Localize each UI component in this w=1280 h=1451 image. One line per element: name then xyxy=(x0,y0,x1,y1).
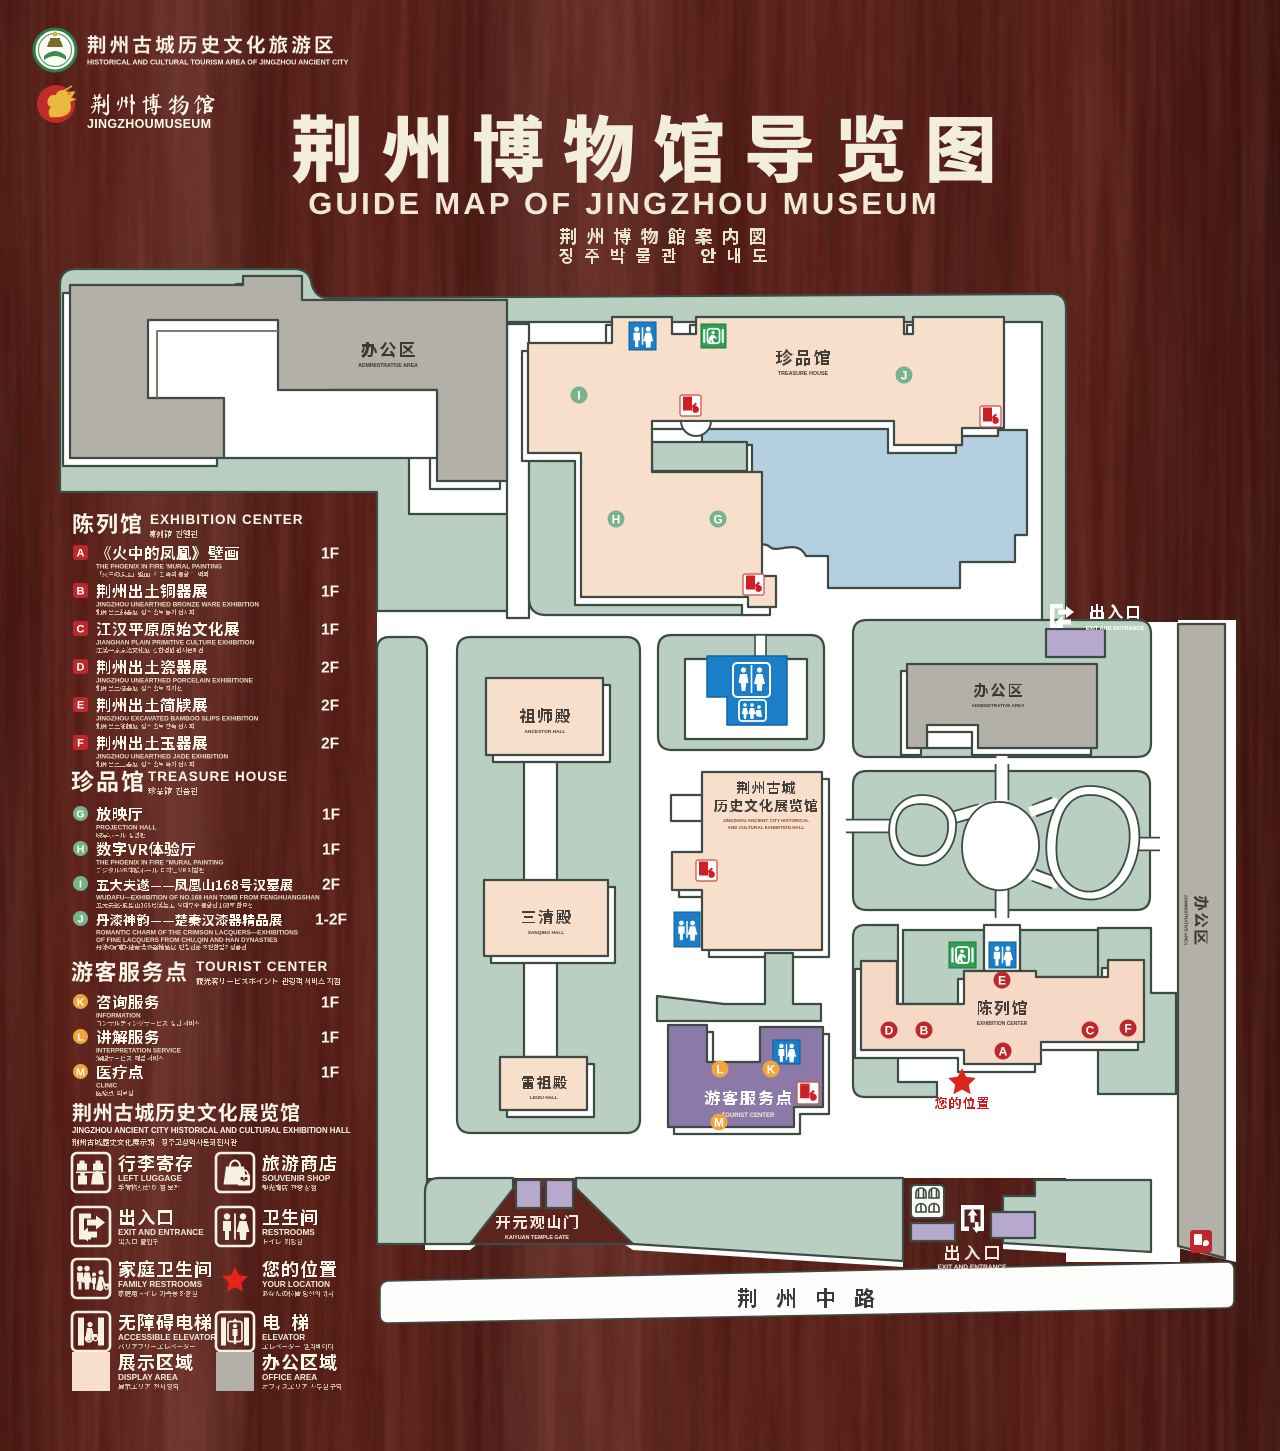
svg-text:WUDAFU—EXHIBITION OF NO.168 HA: WUDAFU—EXHIBITION OF NO.168 HAN TOMB FRO… xyxy=(96,895,320,902)
svg-text:THE PHOENIX IN FIRE 'MURAL PAI: THE PHOENIX IN FIRE 'MURAL PAINTING xyxy=(96,564,222,571)
svg-text:F: F xyxy=(1124,1021,1131,1035)
svg-text:JIANGHAN PLAIN PRIMITIVE CULTU: JIANGHAN PLAIN PRIMITIVE CULTURE EXHIBIT… xyxy=(96,640,255,647)
svg-text:PROJECTION HALL: PROJECTION HALL xyxy=(96,825,156,832)
svg-text:H: H xyxy=(77,844,85,856)
svg-text:1F: 1F xyxy=(322,807,340,824)
svg-text:1F: 1F xyxy=(321,995,339,1012)
svg-text:2F: 2F xyxy=(321,660,339,677)
svg-text:ADMINISTRATIVE AREA: ADMINISTRATIVE AREA xyxy=(1184,895,1189,946)
svg-text:ROMANTIC CHARM OF THE CRIMSON: ROMANTIC CHARM OF THE CRIMSON LACQUERS—E… xyxy=(96,930,299,937)
svg-text:A: A xyxy=(77,548,85,560)
svg-text:M: M xyxy=(714,1115,724,1129)
svg-text:1F: 1F xyxy=(321,546,339,563)
svg-text:D: D xyxy=(885,1023,894,1037)
svg-text:G: G xyxy=(76,809,84,821)
svg-text:INTERPRETATION SERVICE: INTERPRETATION SERVICE xyxy=(96,1048,182,1055)
svg-text:I: I xyxy=(79,879,82,891)
svg-text:KAIYUAN TEMPLE GATE: KAIYUAN TEMPLE GATE xyxy=(505,1235,569,1241)
svg-text:OF FINE LACQUERS FROM CHU,QIN: OF FINE LACQUERS FROM CHU,QIN AND HAN DY… xyxy=(96,937,278,944)
svg-text:I: I xyxy=(577,388,580,402)
svg-text:EXIT AND ENTRANCE: EXIT AND ENTRANCE xyxy=(938,1264,1008,1271)
svg-text:F: F xyxy=(77,738,84,750)
svg-text:E: E xyxy=(998,973,1006,987)
svg-text:ANCESTOR HALL: ANCESTOR HALL xyxy=(525,729,566,735)
svg-text:HISTORICAL AND CULTURAL TOURIS: HISTORICAL AND CULTURAL TOURISM AREA OF … xyxy=(87,58,349,67)
svg-text:JINGZHOU ANCIENT CITY HISTORIC: JINGZHOU ANCIENT CITY HISTORICAL AND CUL… xyxy=(72,1126,351,1135)
svg-text:EXIT AND ENTRANCE: EXIT AND ENTRANCE xyxy=(1086,626,1145,632)
svg-text:TREASURE HOUSE: TREASURE HOUSE xyxy=(148,769,288,784)
svg-text:G: G xyxy=(713,512,722,526)
svg-text:1-2F: 1-2F xyxy=(315,912,347,929)
svg-text:AND CULTURAL EXHIBITION HALL: AND CULTURAL EXHIBITION HALL xyxy=(728,825,805,830)
svg-text:EXHIBITION CENTER: EXHIBITION CENTER xyxy=(150,512,304,527)
svg-text:2F: 2F xyxy=(321,698,339,715)
svg-text:J: J xyxy=(901,368,908,382)
svg-text:1F: 1F xyxy=(321,1030,339,1047)
svg-text:H: H xyxy=(612,512,621,526)
svg-text:LEFT LUGGAGE: LEFT LUGGAGE xyxy=(118,1174,183,1183)
svg-text:1F: 1F xyxy=(321,622,339,639)
svg-text:K: K xyxy=(77,997,85,1009)
svg-text:JINGZHOU EXCAVATED BAMBOO SLIP: JINGZHOU EXCAVATED BAMBOO SLIPS EXHIBITI… xyxy=(96,716,259,723)
svg-text:A: A xyxy=(999,1044,1008,1058)
svg-text:JINGZHOU ANCIENT CITY HISTORIC: JINGZHOU ANCIENT CITY HISTORICAL xyxy=(723,818,809,823)
svg-text:E: E xyxy=(77,700,84,712)
svg-text:2F: 2F xyxy=(321,736,339,753)
svg-text:C: C xyxy=(77,624,85,636)
svg-text:2F: 2F xyxy=(322,877,340,894)
svg-text:ADMINISTRATIVE AREA: ADMINISTRATIVE AREA xyxy=(358,363,418,369)
svg-text:1F: 1F xyxy=(321,1065,339,1082)
svg-text:INFORMATION: INFORMATION xyxy=(96,1013,141,1020)
svg-text:TOURIST CENTER: TOURIST CENTER xyxy=(722,1113,775,1119)
svg-text:RESTROOMS: RESTROOMS xyxy=(262,1228,315,1237)
svg-text:J: J xyxy=(78,914,84,926)
svg-text:K: K xyxy=(767,1062,776,1076)
svg-text:JINGZHOUMUSEUM: JINGZHOUMUSEUM xyxy=(87,117,211,131)
svg-text:SANQING HALL: SANQING HALL xyxy=(528,930,565,936)
svg-text:C: C xyxy=(1086,1023,1095,1037)
svg-text:GUIDE MAP OF JINGZHOU MUSEUM: GUIDE MAP OF JINGZHOU MUSEUM xyxy=(308,186,940,221)
svg-text:JINGZHOU UNEARTHED JADE EXHIBI: JINGZHOU UNEARTHED JADE EXHIBITION xyxy=(96,754,228,761)
svg-text:TREASURE HOUSE: TREASURE HOUSE xyxy=(778,371,829,377)
svg-text:JINGZHOU UNEARTHED PORCELAIN E: JINGZHOU UNEARTHED PORCELAIN EXHIBITIONE xyxy=(96,678,254,685)
svg-text:M: M xyxy=(76,1067,85,1079)
svg-text:JINGZHOU UNEARTHED BRONZE WARE: JINGZHOU UNEARTHED BRONZE WARE EXHIBITIO… xyxy=(96,602,259,609)
svg-text:L: L xyxy=(716,1062,723,1076)
svg-text:ELEVATOR: ELEVATOR xyxy=(262,1333,305,1342)
svg-text:THE PHOENIX IN FIRE ''MURAL PA: THE PHOENIX IN FIRE ''MURAL PAINTING xyxy=(96,860,223,867)
svg-text:DISPLAY AREA: DISPLAY AREA xyxy=(118,1373,178,1382)
svg-text:EXHIBITION CENTER: EXHIBITION CENTER xyxy=(977,1021,1028,1027)
svg-text:1F: 1F xyxy=(321,584,339,601)
svg-text:ACCESSIBLE ELEVATOR: ACCESSIBLE ELEVATOR xyxy=(118,1333,216,1342)
svg-text:LEIZU HALL: LEIZU HALL xyxy=(530,1095,558,1101)
svg-text:SOUVENIR SHOP: SOUVENIR SHOP xyxy=(262,1174,331,1183)
svg-text:FAMILY RESTROOMS: FAMILY RESTROOMS xyxy=(118,1280,203,1289)
svg-text:YOUR LOCATION: YOUR LOCATION xyxy=(262,1280,330,1289)
svg-text:B: B xyxy=(920,1023,929,1037)
svg-text:L: L xyxy=(77,1032,84,1044)
svg-text:B: B xyxy=(77,586,85,598)
svg-text:CLINIC: CLINIC xyxy=(96,1083,118,1090)
svg-text:EXIT AND ENTRANCE: EXIT AND ENTRANCE xyxy=(118,1228,204,1237)
svg-text:TOURIST CENTER: TOURIST CENTER xyxy=(196,959,328,974)
svg-text:OFFICE AREA: OFFICE AREA xyxy=(262,1373,317,1382)
svg-text:ADMINISTRATIVE AREA: ADMINISTRATIVE AREA xyxy=(972,703,1026,708)
svg-text:1F: 1F xyxy=(322,842,340,859)
svg-text:D: D xyxy=(77,662,85,674)
